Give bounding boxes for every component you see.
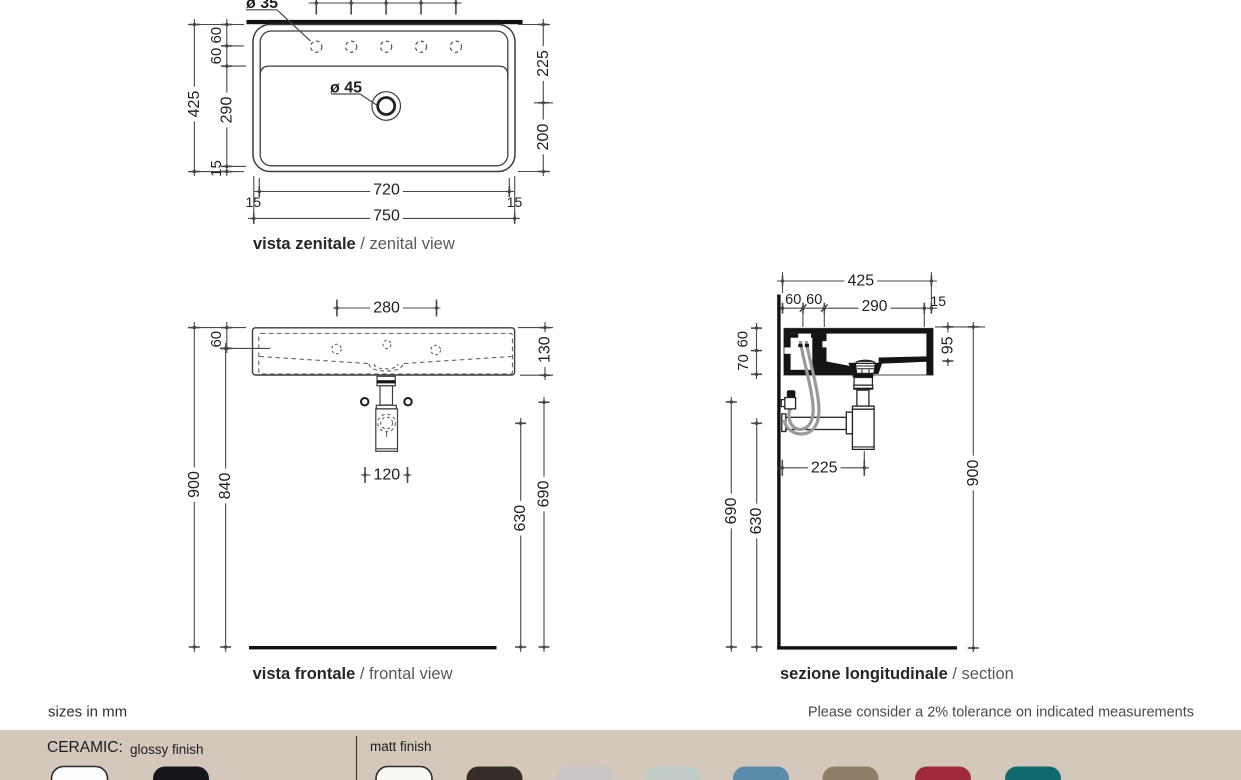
svg-text:130: 130 (537, 336, 554, 363)
svg-text:200: 200 (535, 124, 552, 151)
svg-text:900: 900 (186, 471, 203, 498)
svg-text:CERAMIC:: CERAMIC: (47, 739, 123, 756)
svg-text:60: 60 (735, 331, 752, 348)
svg-text:60: 60 (208, 27, 225, 44)
svg-text:15: 15 (930, 293, 946, 309)
svg-text:690: 690 (536, 481, 553, 508)
svg-text:425: 425 (847, 273, 874, 290)
svg-text:sezione longitudinale / sectio: sezione longitudinale / section (780, 665, 1014, 683)
svg-text:15: 15 (208, 160, 225, 177)
svg-text:720: 720 (373, 182, 400, 199)
svg-text:glossy finish: glossy finish (130, 742, 204, 757)
svg-text:vista zenitale / zenital view: vista zenitale / zenital view (253, 235, 455, 253)
svg-text:60: 60 (208, 331, 225, 348)
svg-text:60: 60 (208, 48, 225, 65)
svg-text:60: 60 (806, 292, 822, 308)
svg-text:630: 630 (512, 505, 529, 532)
svg-text:225: 225 (811, 459, 838, 476)
svg-text:120: 120 (373, 467, 400, 484)
svg-text:225: 225 (535, 50, 552, 77)
svg-text:900: 900 (965, 460, 982, 487)
svg-text:425: 425 (186, 91, 203, 118)
svg-text:70: 70 (735, 354, 752, 371)
svg-text:matt finish: matt finish (370, 739, 432, 754)
svg-text:750: 750 (373, 208, 400, 225)
svg-text:95: 95 (939, 336, 956, 354)
svg-text:sizes in mm: sizes in mm (48, 704, 127, 721)
svg-text:290: 290 (218, 97, 235, 124)
svg-text:60: 60 (785, 292, 801, 308)
svg-text:Please consider a 2% tolerance: Please consider a 2% tolerance on indica… (808, 705, 1194, 721)
svg-text:290: 290 (862, 298, 888, 315)
svg-text:280: 280 (373, 300, 400, 317)
svg-text:630: 630 (748, 508, 765, 535)
svg-text:840: 840 (217, 473, 234, 500)
svg-text:690: 690 (723, 498, 740, 525)
svg-text:vista frontale / frontal view: vista frontale / frontal view (253, 665, 453, 683)
